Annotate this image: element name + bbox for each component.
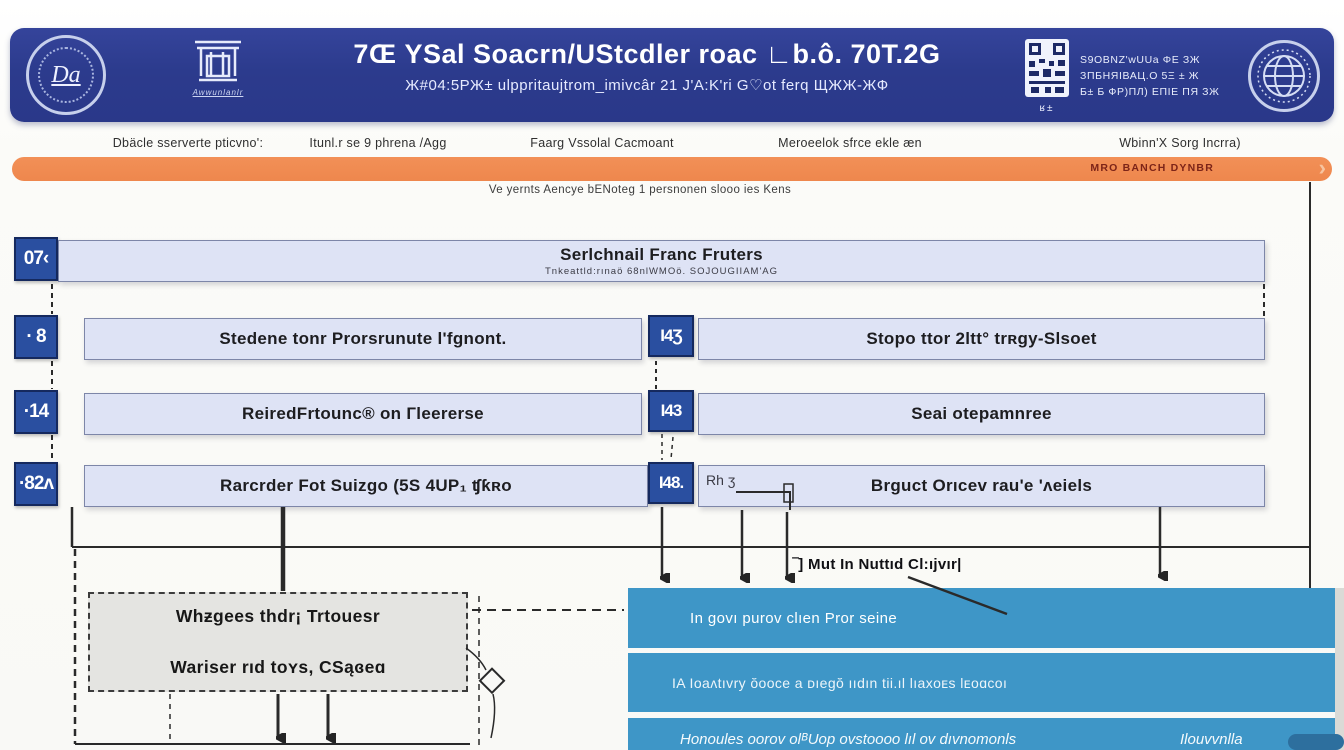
step-badge-22: ·82ʌ: [14, 462, 58, 506]
gray-note-box: Whƶgees thdr¡ Trtouesr Wariser rıd toʏs,…: [88, 592, 468, 692]
flow-bar-row4-left: Rarcrder Fot Suizgo (5S 4UP₁ ʧƙʀo: [84, 465, 648, 507]
blue-panel-label: ‾] Mut In Nuttıd Cl:ıjvır|: [793, 556, 962, 573]
seal-label: Da: [51, 62, 80, 89]
orange-divider-bar: MRO BANCH DYNBR ›: [12, 157, 1332, 181]
step-badge-2: I4Ʒ: [648, 315, 694, 357]
gray-note-line2: Wariser rıd toʏs, CSąɞeɑ: [98, 657, 458, 678]
step-badge-14: ·14: [14, 390, 58, 434]
blue-row-3-text: Honoules oorov olᴮUop ovstoooo lıl ov dı…: [680, 731, 1016, 748]
flow-bar-row4-right-title: Brguct Orıcev rau'e 'ʌeiels: [871, 476, 1092, 496]
flow-bar-row2-left: Stedene tonr Prorsrunute l'fgnont.: [84, 318, 642, 360]
flow-bar-row2-left-title: Stedene tonr Prorsrunute l'fgnont.: [219, 329, 506, 349]
step-badge-3: I43: [648, 390, 694, 432]
blue-row-3-right-text: Ilouvvnlla: [1180, 731, 1243, 748]
page-title: 7Œ ΥSal Soacrn/UStcdler roac ∟b.ô. 70T.2…: [260, 38, 1034, 72]
row4-annotation: Rh ʒ: [706, 472, 735, 488]
intro-text: Ve yernts Aencye bENoteg 1 persnonen slo…: [489, 184, 791, 196]
menu-item-3: Faarg Vssolal Cacmoant: [530, 136, 673, 150]
flow-bar-row1: Serlchnail Franc Fruters Tnkeattld:rınaö…: [58, 240, 1265, 282]
step-badge-01: 07‹: [14, 237, 58, 281]
globe-icon: [1248, 40, 1320, 112]
flow-bar-row3-left: ReiredFrtounc® on Гleererse: [84, 393, 642, 435]
menu-item-4: Meroeelok sfrce ekle æn: [778, 136, 922, 150]
banner-right-text: MRO BANCH DYNBR: [1090, 162, 1214, 174]
info-line: S9OBNZ'wUUa ΦΕ ЗЖ: [1080, 52, 1238, 68]
blue-result-panel: In ɡovı purov clıen Pror seine IA Ioaʌtı…: [628, 588, 1335, 750]
flow-bar-row4-left-title: Rarcrder Fot Suizgo (5S 4UP₁ ʧƙʀo: [220, 476, 512, 496]
menu-item-1: Dbäcle sserverte pticvno':: [113, 136, 264, 150]
institution-emblem-icon: Awwunlanlr: [172, 38, 264, 114]
info-line: ЗПБНЯІВАЦ.О 5Ξ ± Ж: [1080, 68, 1238, 84]
flow-bar-row3-right: Seai otepamnree: [698, 393, 1265, 435]
blue-row-1-text: In ɡovı purov clıen Pror seine: [690, 610, 897, 627]
poster-diagram: Da Awwunlanlr 7Œ ΥSal Soacrn/UStcdler ro…: [0, 0, 1344, 750]
university-seal-icon: Da: [26, 35, 106, 115]
info-line: Б± Б ФР)ПЛ) ЕПІЕ ПЯ ЗЖ: [1080, 84, 1238, 100]
header-info-block: S9OBNZ'wUUa ΦΕ ЗЖ ЗПБНЯІВАЦ.О 5Ξ ± Ж Б± …: [1080, 52, 1238, 101]
flow-bar-row1-subtitle: Tnkeattld:rınaö 68nlWMOö. SOJOUGIIAM'AG: [545, 266, 778, 277]
flow-bar-row3-left-title: ReiredFrtounc® on Гleererse: [242, 404, 484, 424]
header-banner: Da Awwunlanlr 7Œ ΥSal Soacrn/UStcdler ro…: [10, 28, 1334, 122]
qr-code-icon: ʁ±: [1024, 39, 1070, 114]
flow-bar-row2-right: Stopo ttor 2ltt° trʀgy-Slsoet: [698, 318, 1265, 360]
page-subtitle: Ж#04:5РЖ± ulppritaujtrom_imivcâr 21 J'A:…: [260, 76, 1034, 94]
step-badge-4: I48.: [648, 462, 694, 504]
flow-bar-row4-right: Brguct Orıcev rau'e 'ʌeiels: [698, 465, 1265, 507]
flow-bar-row1-title: Serlchnail Franc Fruters: [560, 245, 763, 265]
blue-row-3: Honoules oorov olᴮUop ovstoooo lıl ov dı…: [628, 718, 1335, 750]
blue-row-2: IA Ioaʌtıvry ŏooce a ᴅıegŏ ııdın tii.ıl …: [628, 653, 1335, 712]
step-badge-08: · 8: [14, 315, 58, 359]
corner-tab: [1288, 734, 1344, 750]
flow-bar-row3-right-title: Seai otepamnree: [911, 404, 1052, 424]
gray-note-line1: Whƶgees thdr¡ Trtouesr: [98, 606, 458, 627]
emblem-caption: Awwunlanlr: [172, 88, 264, 97]
flow-bar-row2-right-title: Stopo ttor 2ltt° trʀgy-Slsoet: [866, 329, 1096, 349]
chevron-right-icon: ›: [1319, 155, 1326, 181]
panel-edge-shadow: [1335, 588, 1344, 750]
blue-row-2-text: IA Ioaʌtıvry ŏooce a ᴅıegŏ ııdın tii.ıl …: [672, 675, 1007, 691]
blue-row-1: In ɡovı purov clıen Pror seine: [628, 588, 1335, 648]
qr-caption: ʁ±: [1024, 103, 1070, 114]
menu-item-2: Itunl.r se 9 phrena /Agg: [309, 136, 446, 150]
menu-item-5: Wbinn'X Sorg Incrra): [1119, 136, 1241, 150]
